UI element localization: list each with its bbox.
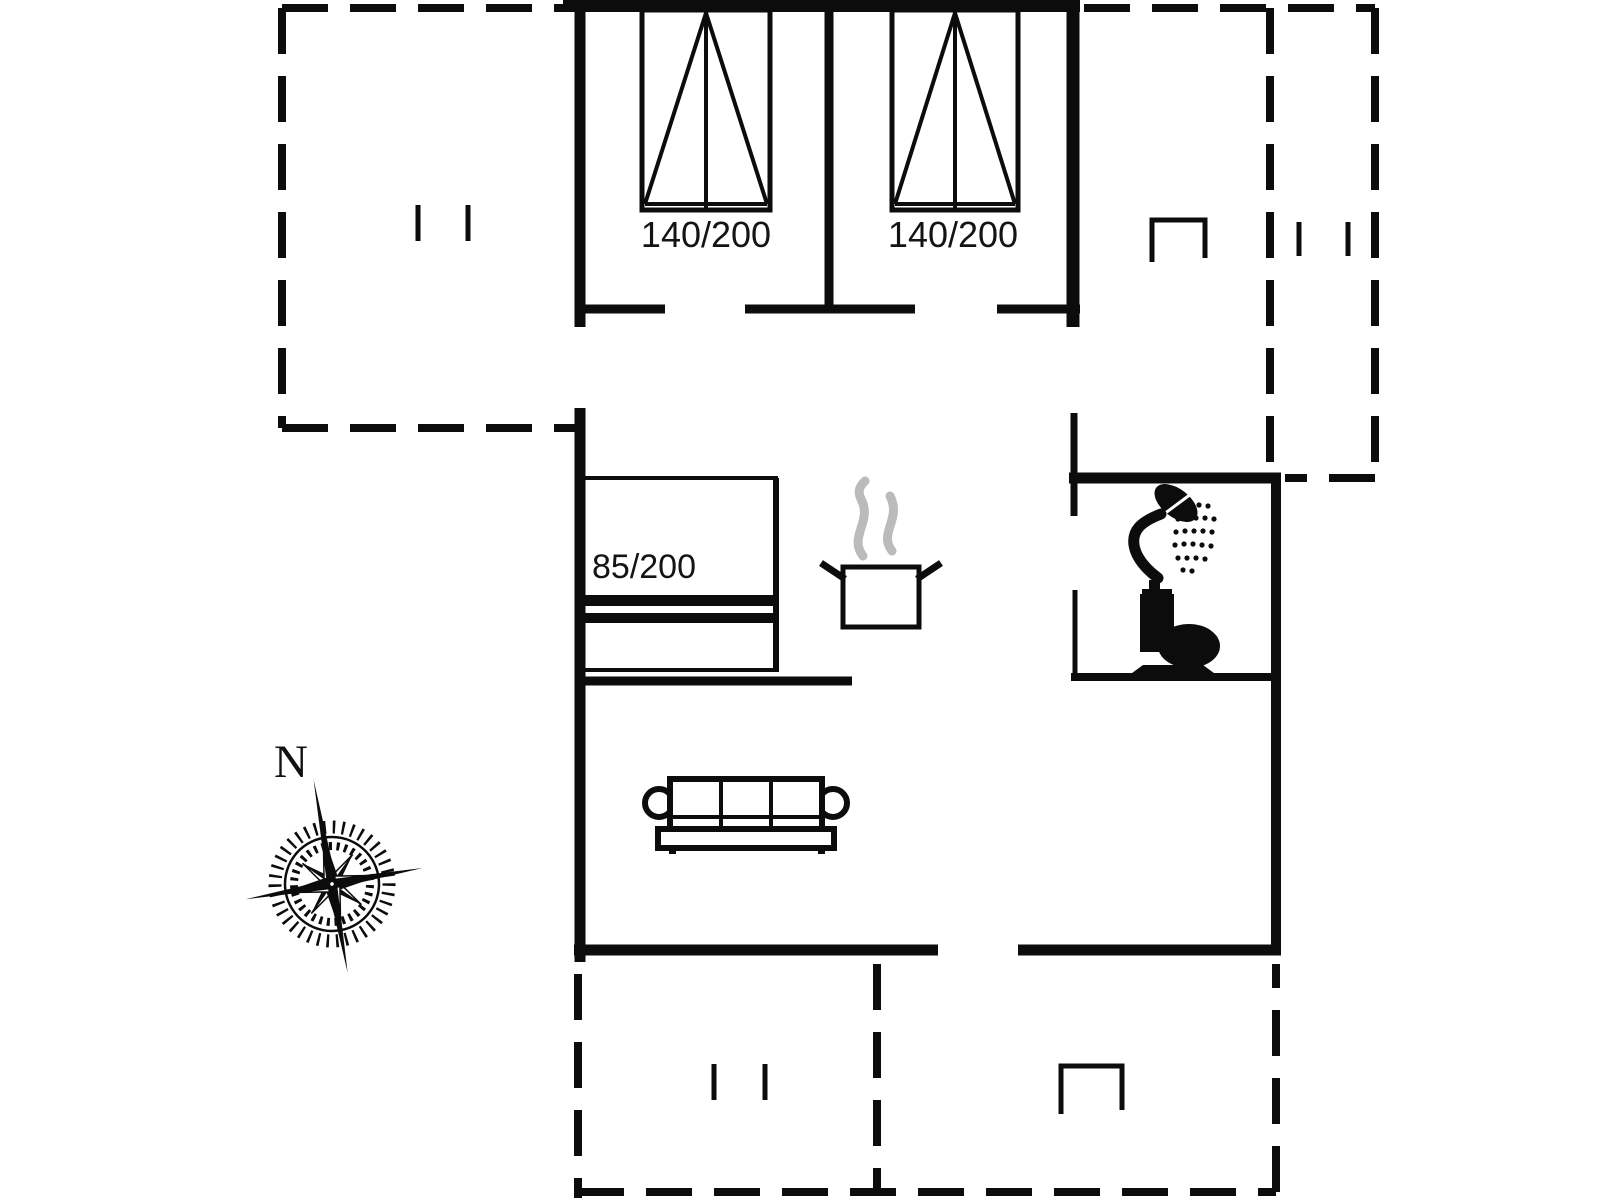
wall-bracket [1152, 220, 1205, 262]
door-mark-ticks [418, 205, 468, 241]
bed-size-label-3: 85/200 [592, 548, 696, 586]
wall-bracket [1061, 1066, 1122, 1114]
double-bed-2 [892, 10, 1018, 210]
compass-rose-icon [227, 764, 438, 988]
terrace-top-right [1084, 8, 1375, 478]
sofa-icon [645, 779, 847, 854]
door-mark-ticks [714, 1064, 765, 1100]
steam-icon [858, 481, 893, 556]
bed-size-label-2: 140/200 [888, 214, 1018, 255]
terrace-top-left [282, 8, 578, 428]
shower-icon [1134, 477, 1217, 578]
door-mark-ticks [1299, 222, 1348, 256]
floor-plan-drawing: 140/200 140/200 [0, 0, 1600, 1200]
compass-north-label: N [274, 736, 308, 788]
cooking-pot-icon [821, 481, 941, 627]
terrace-bottom [578, 964, 1276, 1198]
floor-plan: 140/200 140/200 [0, 0, 1600, 1200]
bed-size-label-1: 140/200 [641, 214, 771, 255]
toilet-icon [1128, 580, 1220, 676]
double-bed-1 [642, 10, 770, 210]
